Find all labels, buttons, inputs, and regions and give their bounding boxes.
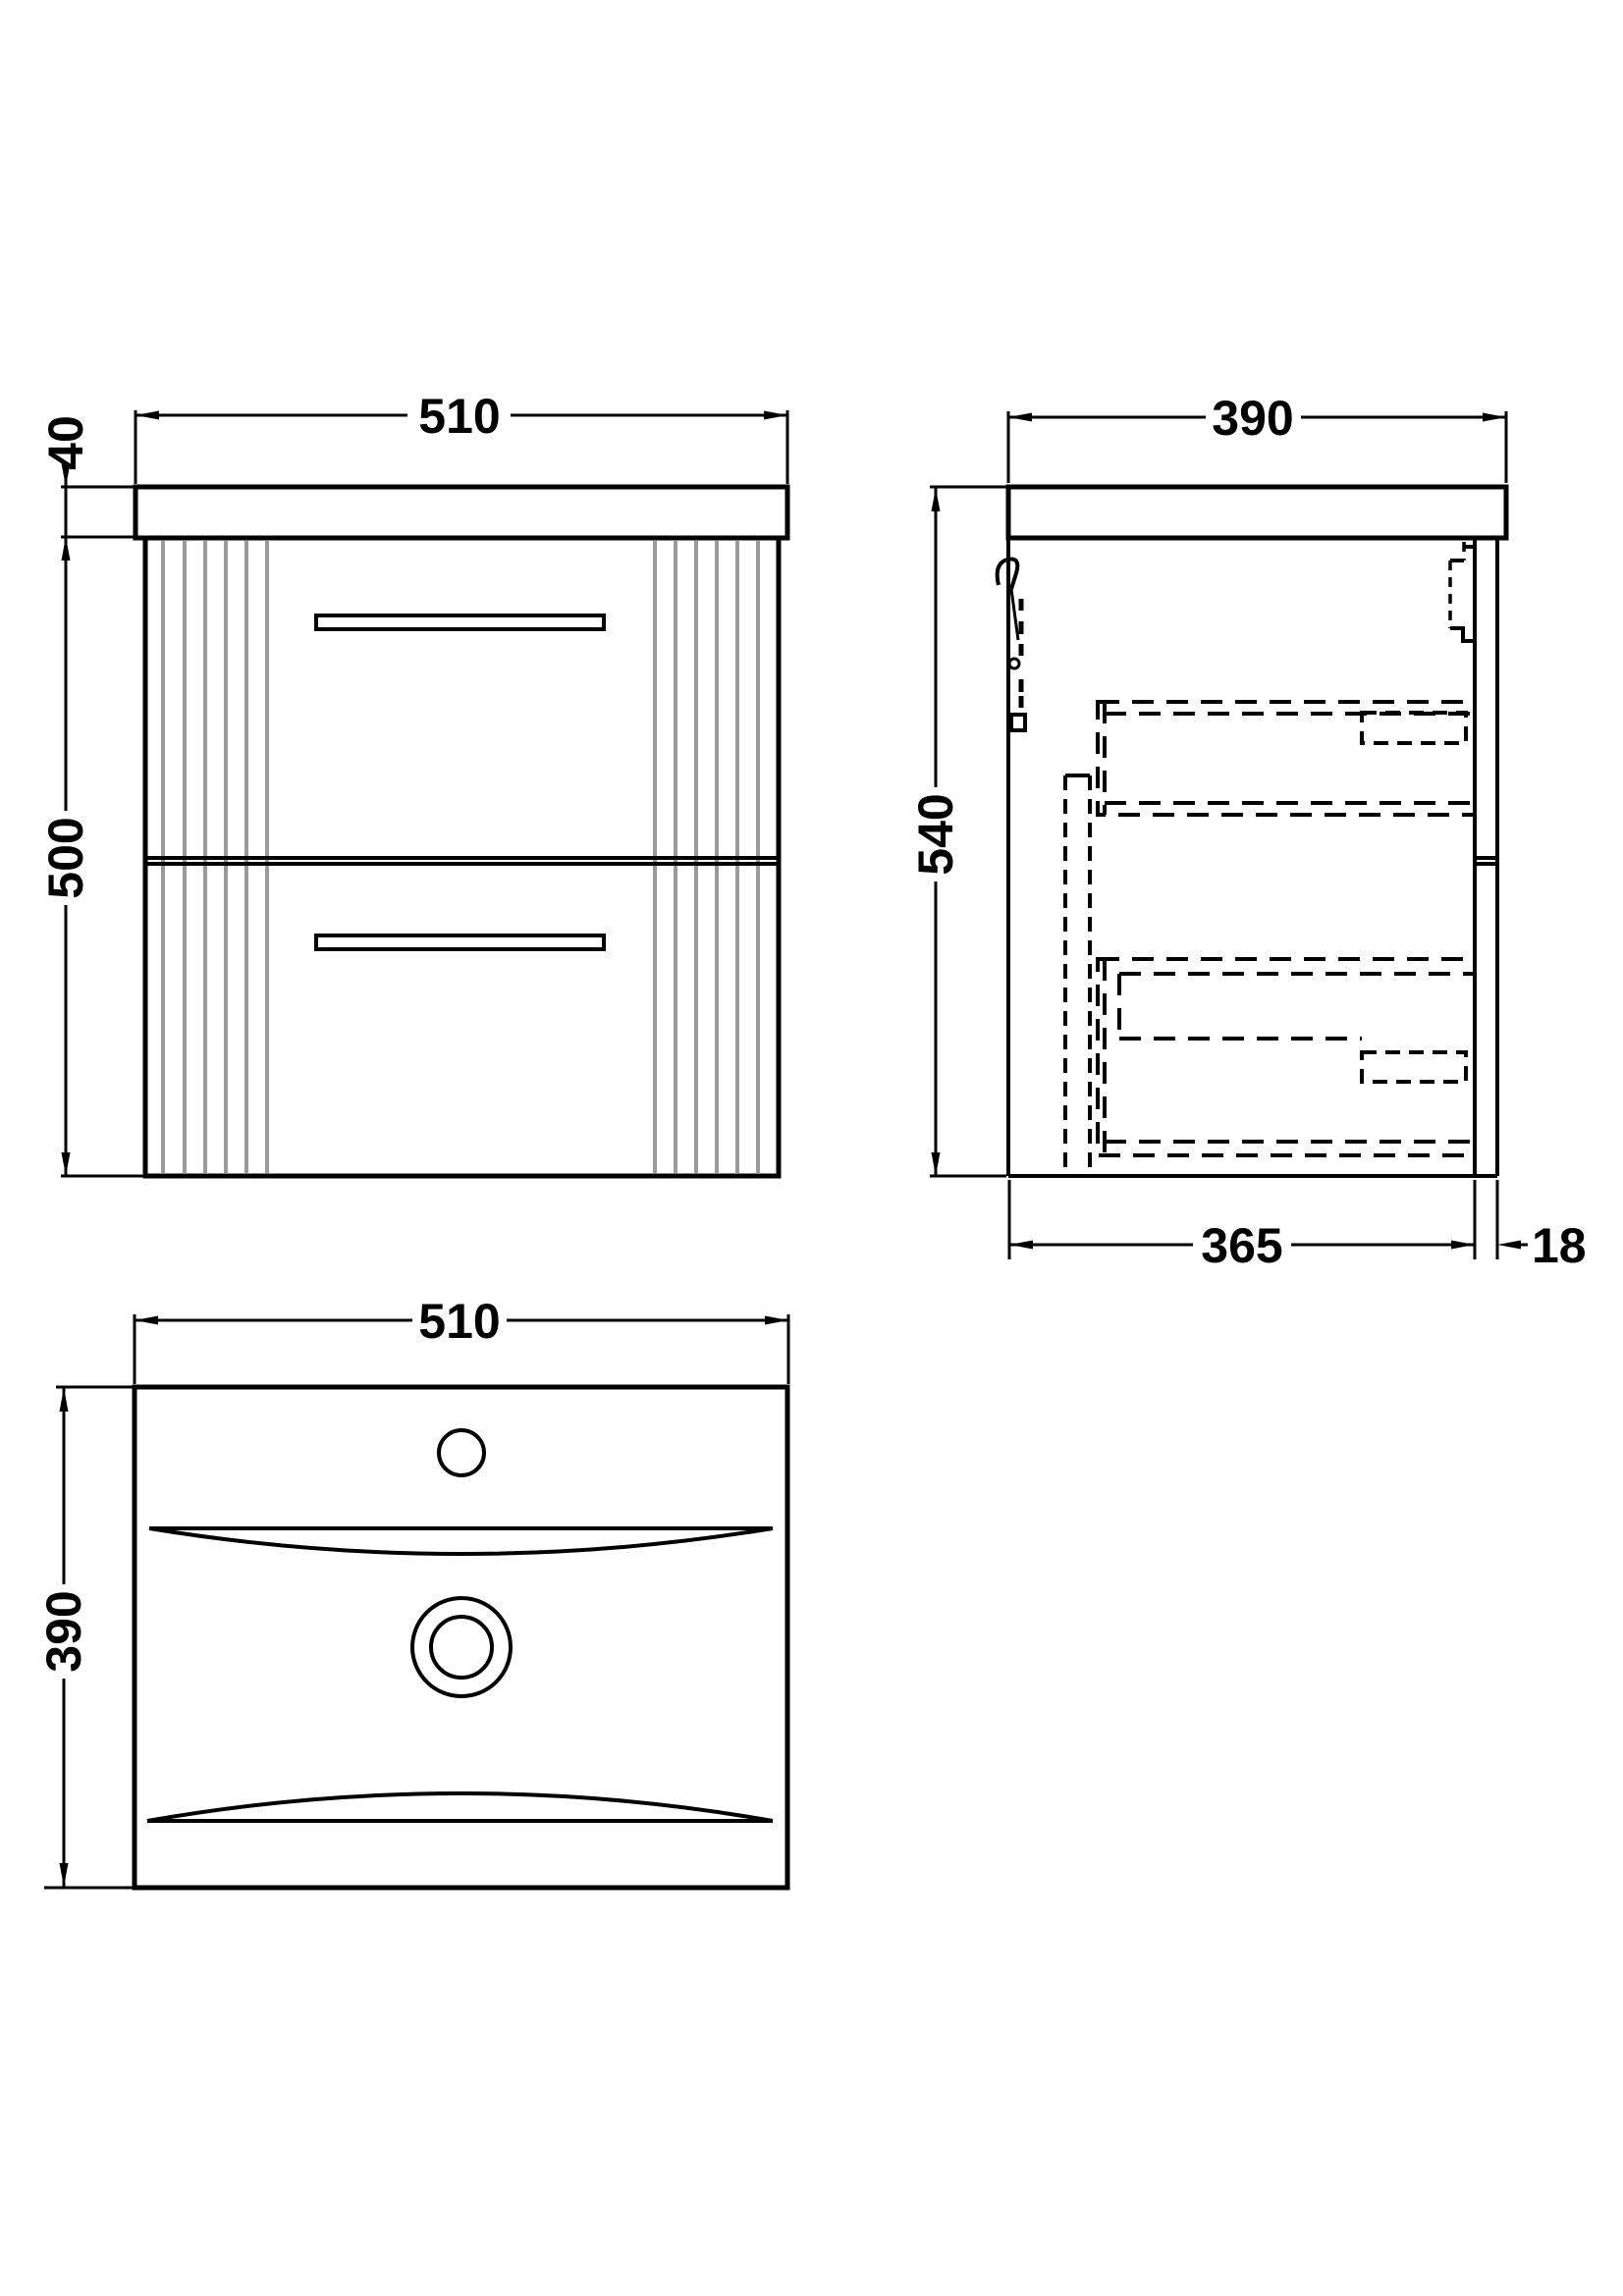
vanity-technical-drawing: 510 40 500 <box>0 0 1623 2296</box>
side-wall-bracket <box>1450 541 1475 641</box>
front-dim-cabinet-height: 500 <box>38 537 147 1176</box>
side-dim-internal-depth: 365 <box>1009 1180 1475 1273</box>
side-lower-drawer-box <box>1098 959 1475 1155</box>
side-upper-drawer-runner <box>1362 713 1466 743</box>
front-top-drawer-handle <box>316 615 604 629</box>
plan-tap-hole <box>439 1430 484 1475</box>
side-elevation-view: 390 540 365 18 <box>908 391 1587 1273</box>
front-elevation-view: 510 40 500 <box>38 389 787 1176</box>
drawing-sheet: 510 40 500 <box>0 0 1623 2296</box>
front-cabinet-height-label: 500 <box>38 817 93 898</box>
front-width-label: 510 <box>418 389 500 444</box>
side-dim-back-panel: 18 <box>1497 1180 1587 1273</box>
side-countertop <box>1008 487 1506 538</box>
front-dim-countertop-thickness: 40 <box>38 415 147 561</box>
side-upper-drawer-box <box>1098 702 1475 815</box>
side-dim-overall-height: 540 <box>908 487 1006 1176</box>
side-back-panel <box>1475 540 1497 1176</box>
front-countertop-thickness-label: 40 <box>38 415 93 470</box>
front-bottom-drawer-handle <box>316 935 604 949</box>
plan-width-label: 510 <box>418 1294 500 1349</box>
side-back-panel-label: 18 <box>1532 1218 1587 1273</box>
side-lower-drawer-runner <box>1362 1052 1466 1082</box>
basin-plan-view: 510 390 <box>36 1294 788 1888</box>
plan-bowl-back-edge <box>149 1528 773 1554</box>
plan-bowl-front-edge <box>147 1793 773 1821</box>
front-drawer-divider <box>145 858 779 864</box>
side-internal-depth-label: 365 <box>1201 1218 1282 1273</box>
side-overall-height-label: 540 <box>908 793 963 875</box>
front-countertop <box>135 487 787 538</box>
side-dim-depth: 390 <box>1008 391 1506 483</box>
front-dim-width: 510 <box>135 389 787 484</box>
plan-dim-width: 510 <box>135 1294 788 1384</box>
side-depth-label: 390 <box>1212 391 1293 446</box>
plan-waste-hole <box>412 1598 511 1696</box>
plan-basin-outline <box>135 1387 787 1888</box>
side-drawer-front-hidden <box>1065 775 1090 1176</box>
side-bracket-adjuster <box>998 560 1025 730</box>
plan-dim-depth: 390 <box>36 1387 135 1888</box>
plan-depth-label: 390 <box>36 1590 91 1672</box>
